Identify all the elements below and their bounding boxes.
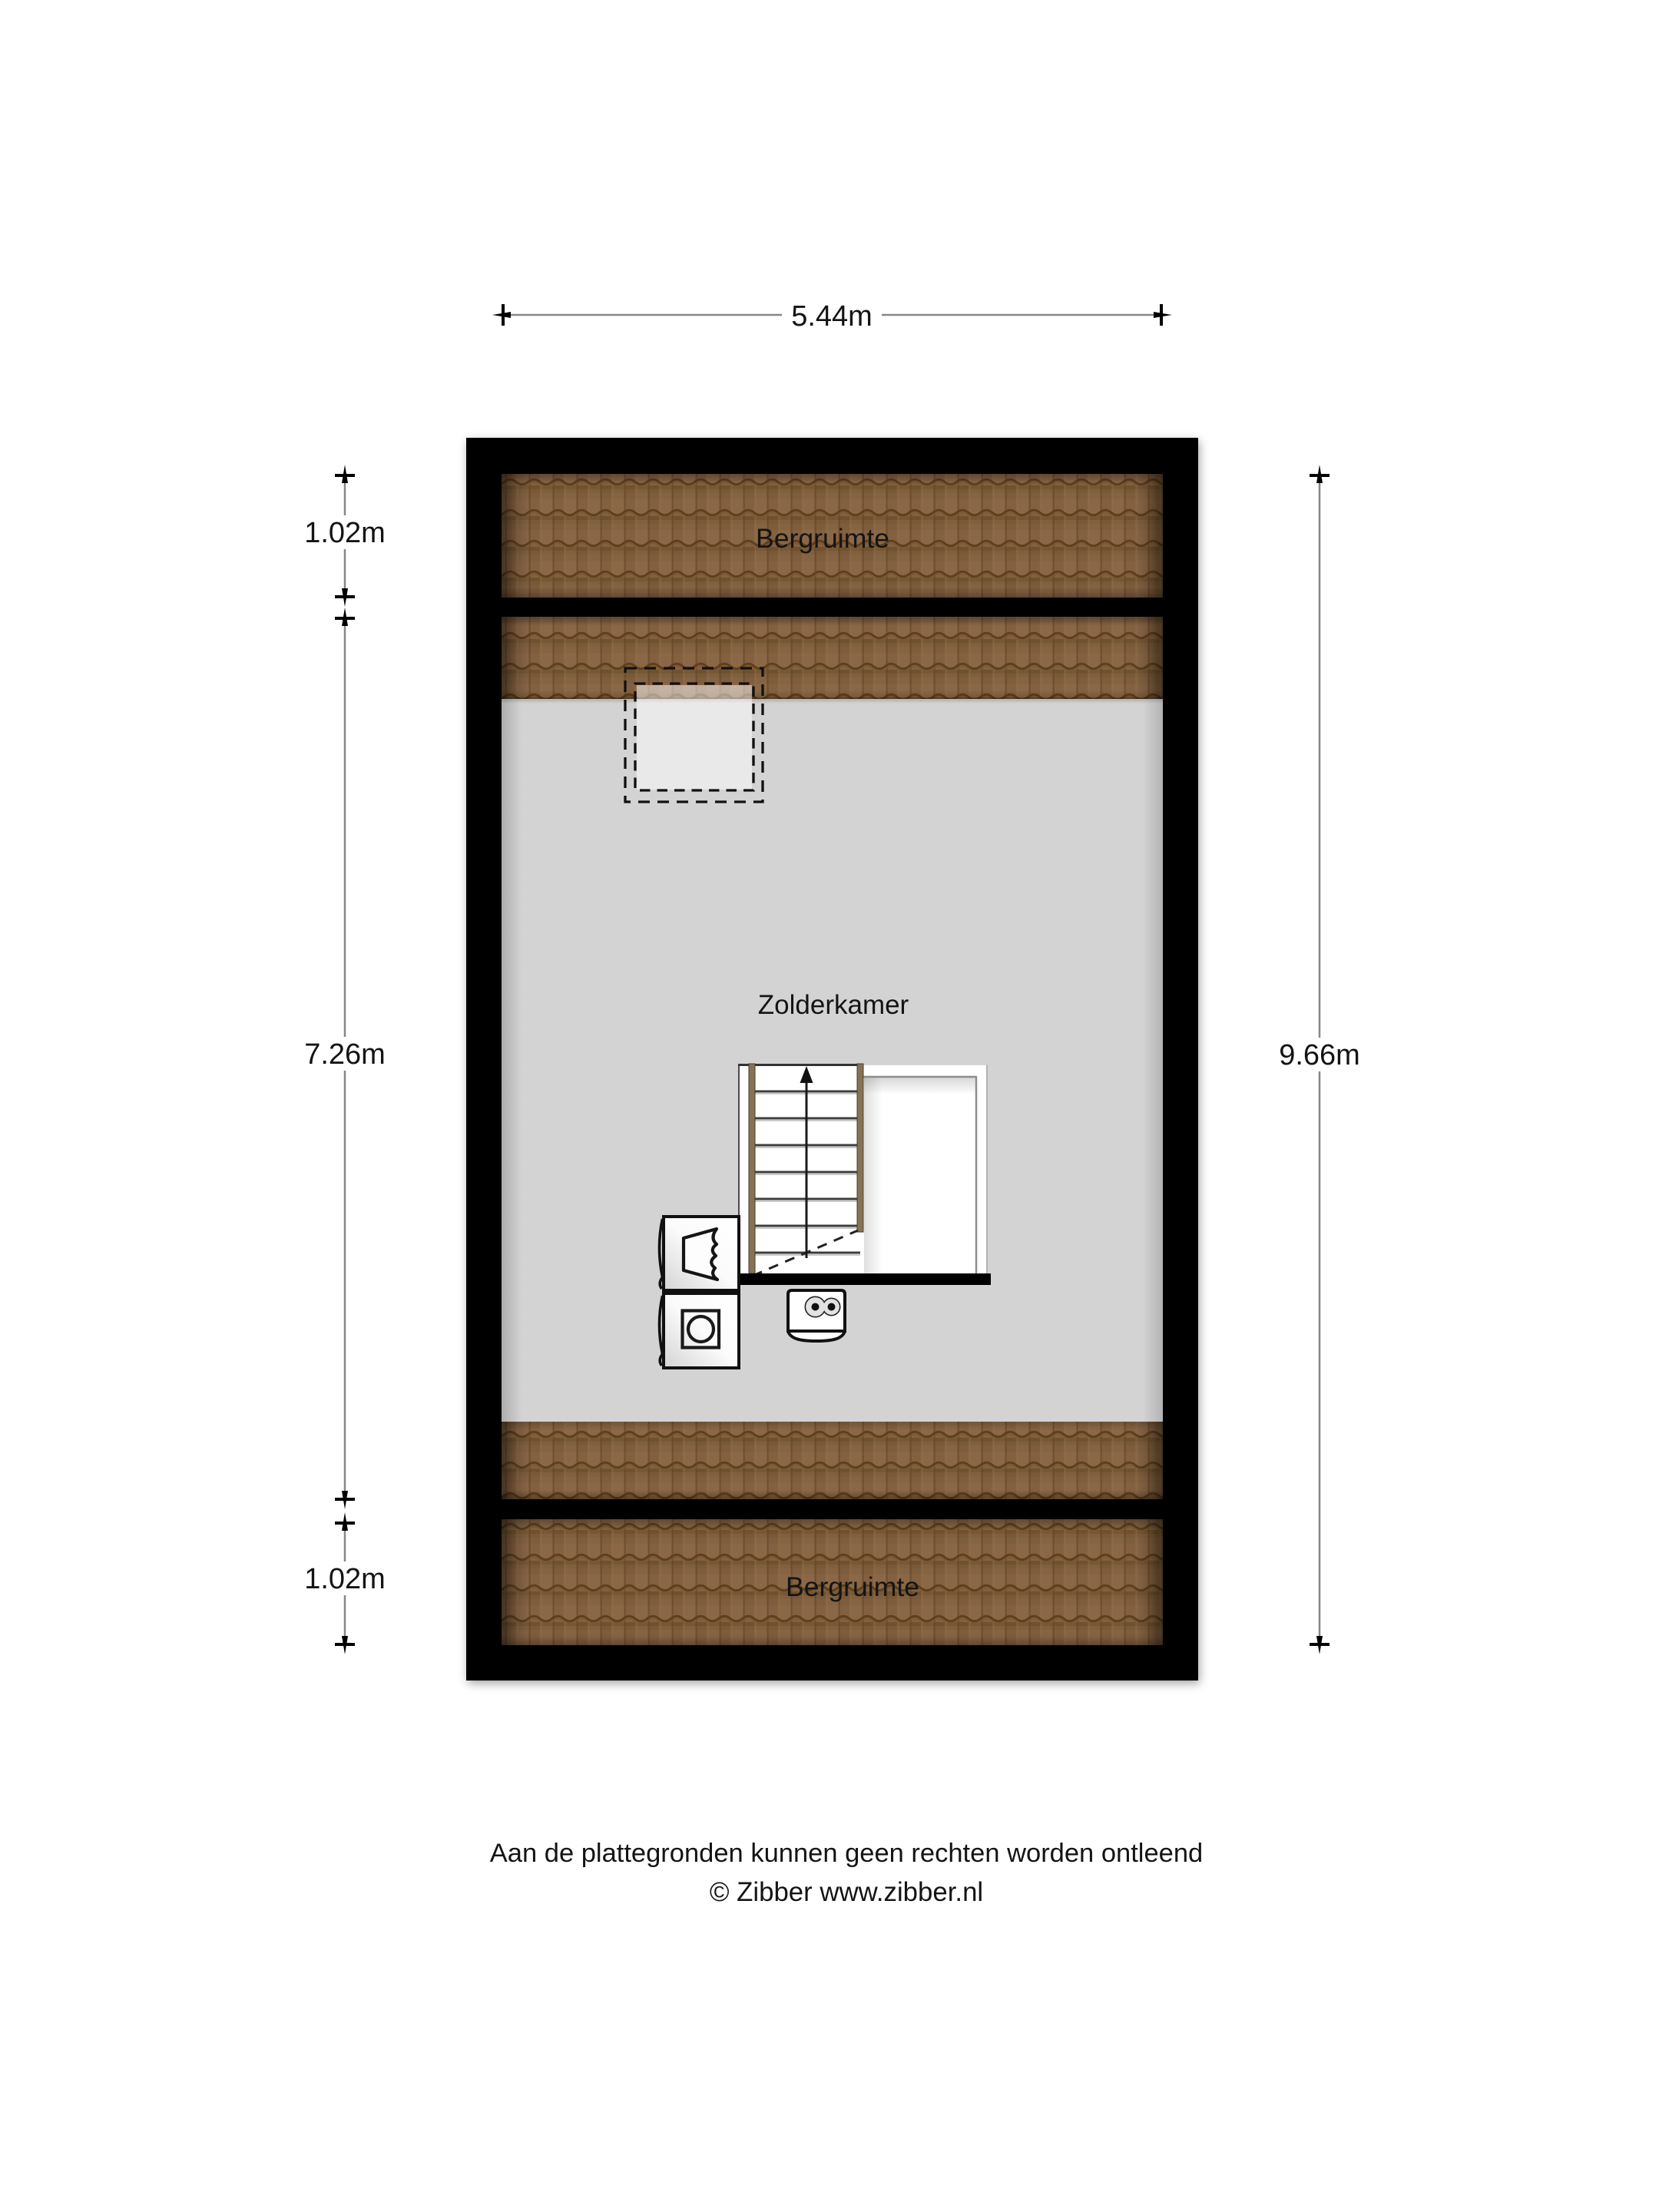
svg-text:5.44m: 5.44m [791, 300, 873, 333]
svg-text:Aan de plattegronden kunnen ge: Aan de plattegronden kunnen geen rechten… [490, 1839, 1203, 1868]
svg-text:Bergruimte: Bergruimte [786, 1571, 919, 1602]
svg-text:Bergruimte: Bergruimte [756, 523, 889, 554]
svg-text:Zolderkamer: Zolderkamer [758, 990, 909, 1020]
svg-text:9.66m: 9.66m [1279, 1039, 1360, 1071]
svg-text:7.26m: 7.26m [304, 1038, 386, 1071]
svg-text:1.02m: 1.02m [304, 517, 386, 549]
svg-text:© Zibber www.zibber.nl: © Zibber www.zibber.nl [710, 1877, 983, 1907]
svg-text:1.02m: 1.02m [304, 1563, 386, 1595]
